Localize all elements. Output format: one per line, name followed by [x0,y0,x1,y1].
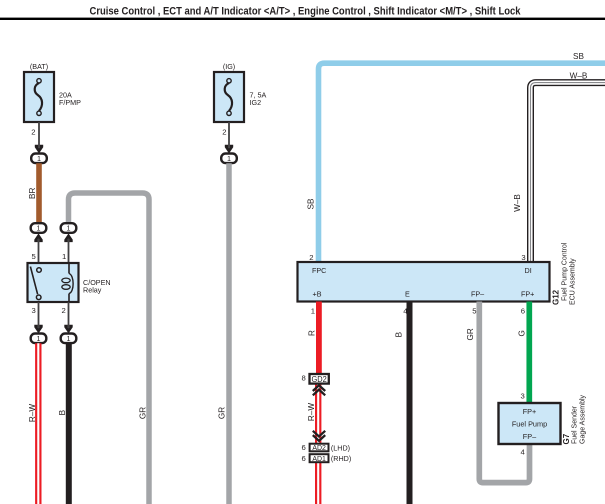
svg-text:(BAT): (BAT) [30,62,48,71]
svg-text:2: 2 [222,128,226,137]
svg-text:6: 6 [302,443,306,452]
svg-text:Cruise Control , ECT and A/T I: Cruise Control , ECT and A/T Indicator <… [90,6,522,18]
svg-text:GR: GR [138,407,147,419]
svg-text:(IG): (IG) [223,62,235,71]
svg-text:G12: G12 [552,289,561,305]
svg-text:5: 5 [472,307,476,316]
svg-text:(RHD): (RHD) [331,454,351,463]
svg-text:Relay: Relay [83,285,102,294]
svg-text:AD2: AD2 [312,443,326,452]
svg-text:Gage Assembly: Gage Assembly [579,394,586,444]
svg-text:ECU Assembly: ECU Assembly [570,258,577,305]
svg-text:B: B [395,331,404,337]
svg-text:R: R [308,330,317,336]
svg-text:GR: GR [218,407,227,419]
svg-text:AD1: AD1 [312,454,326,463]
svg-text:IG2: IG2 [250,98,262,107]
svg-text:Fuel Sender: Fuel Sender [572,405,579,444]
svg-text:2: 2 [62,306,66,315]
svg-text:FP–: FP– [471,290,484,299]
svg-text:FPC: FPC [312,266,326,275]
svg-text:G7: G7 [562,433,571,444]
svg-text:B: B [58,409,67,415]
svg-text:2: 2 [31,128,35,137]
svg-text:R–W: R–W [307,403,316,421]
svg-text:3: 3 [32,306,36,315]
svg-text:SB: SB [307,198,316,209]
svg-text:8: 8 [302,373,306,382]
svg-text:GD2: GD2 [312,375,328,384]
svg-text:3: 3 [521,253,525,262]
svg-text:SB: SB [573,52,584,61]
svg-text:G: G [518,330,527,336]
svg-text:+B: +B [313,290,322,299]
svg-text:6: 6 [302,454,306,463]
svg-text:1: 1 [62,252,66,261]
svg-text:W–B: W–B [570,71,588,80]
svg-text:4: 4 [521,448,526,457]
svg-text:FP+: FP+ [523,407,537,416]
svg-text:2: 2 [309,253,313,262]
svg-text:Fuel Pump Control: Fuel Pump Control [562,242,569,301]
svg-text:6: 6 [521,307,525,316]
svg-text:E: E [405,290,410,299]
svg-text:(LHD): (LHD) [331,443,350,452]
svg-text:FP–: FP– [523,432,537,441]
svg-text:Fuel Pump: Fuel Pump [512,419,547,428]
svg-text:F/PMP: F/PMP [59,98,81,107]
svg-text:1: 1 [311,307,315,316]
svg-text:5: 5 [32,252,36,261]
svg-text:DI: DI [525,266,532,275]
svg-text:BR: BR [28,188,37,199]
svg-text:3: 3 [521,392,525,401]
svg-text:W–B: W–B [513,194,522,212]
svg-text:R–W: R–W [28,404,37,422]
svg-text:GR: GR [466,328,475,340]
svg-text:FP+: FP+ [521,290,534,299]
